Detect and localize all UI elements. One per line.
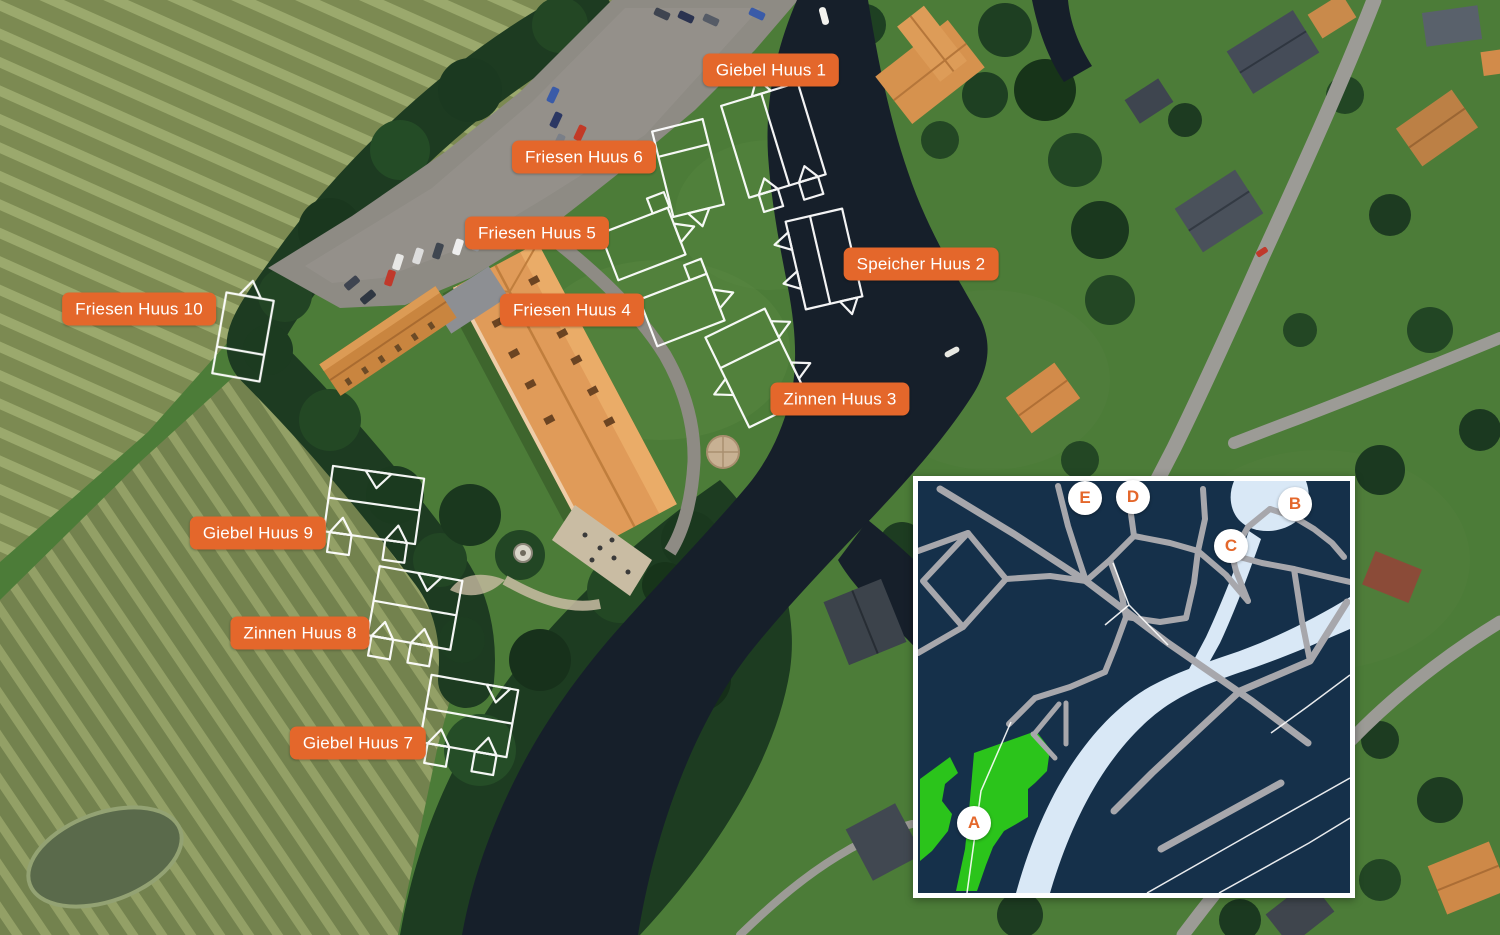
inset-marker-c[interactable]: C xyxy=(1214,529,1248,563)
label-friesen-huus-10[interactable]: Friesen Huus 10 xyxy=(62,293,216,326)
label-giebel-huus-9[interactable]: Giebel Huus 9 xyxy=(190,517,326,550)
label-friesen-huus-5[interactable]: Friesen Huus 5 xyxy=(465,217,609,250)
label-friesen-huus-4[interactable]: Friesen Huus 4 xyxy=(500,294,644,327)
label-giebel-huus-1[interactable]: Giebel Huus 1 xyxy=(703,54,839,87)
aerial-site-map: Giebel Huus 1 Friesen Huus 6 Friesen Huu… xyxy=(0,0,1500,935)
label-zinnen-huus-8[interactable]: Zinnen Huus 8 xyxy=(230,617,369,650)
label-speicher-huus-2[interactable]: Speicher Huus 2 xyxy=(844,248,999,281)
inset-marker-e[interactable]: E xyxy=(1068,481,1102,515)
label-friesen-huus-6[interactable]: Friesen Huus 6 xyxy=(512,141,656,174)
inset-marker-a[interactable]: A xyxy=(957,806,991,840)
label-giebel-huus-7[interactable]: Giebel Huus 7 xyxy=(290,727,426,760)
inset-marker-b[interactable]: B xyxy=(1278,487,1312,521)
label-zinnen-huus-3[interactable]: Zinnen Huus 3 xyxy=(770,383,909,416)
inset-map[interactable]: A B C D E xyxy=(913,476,1355,898)
inset-marker-d[interactable]: D xyxy=(1116,480,1150,514)
